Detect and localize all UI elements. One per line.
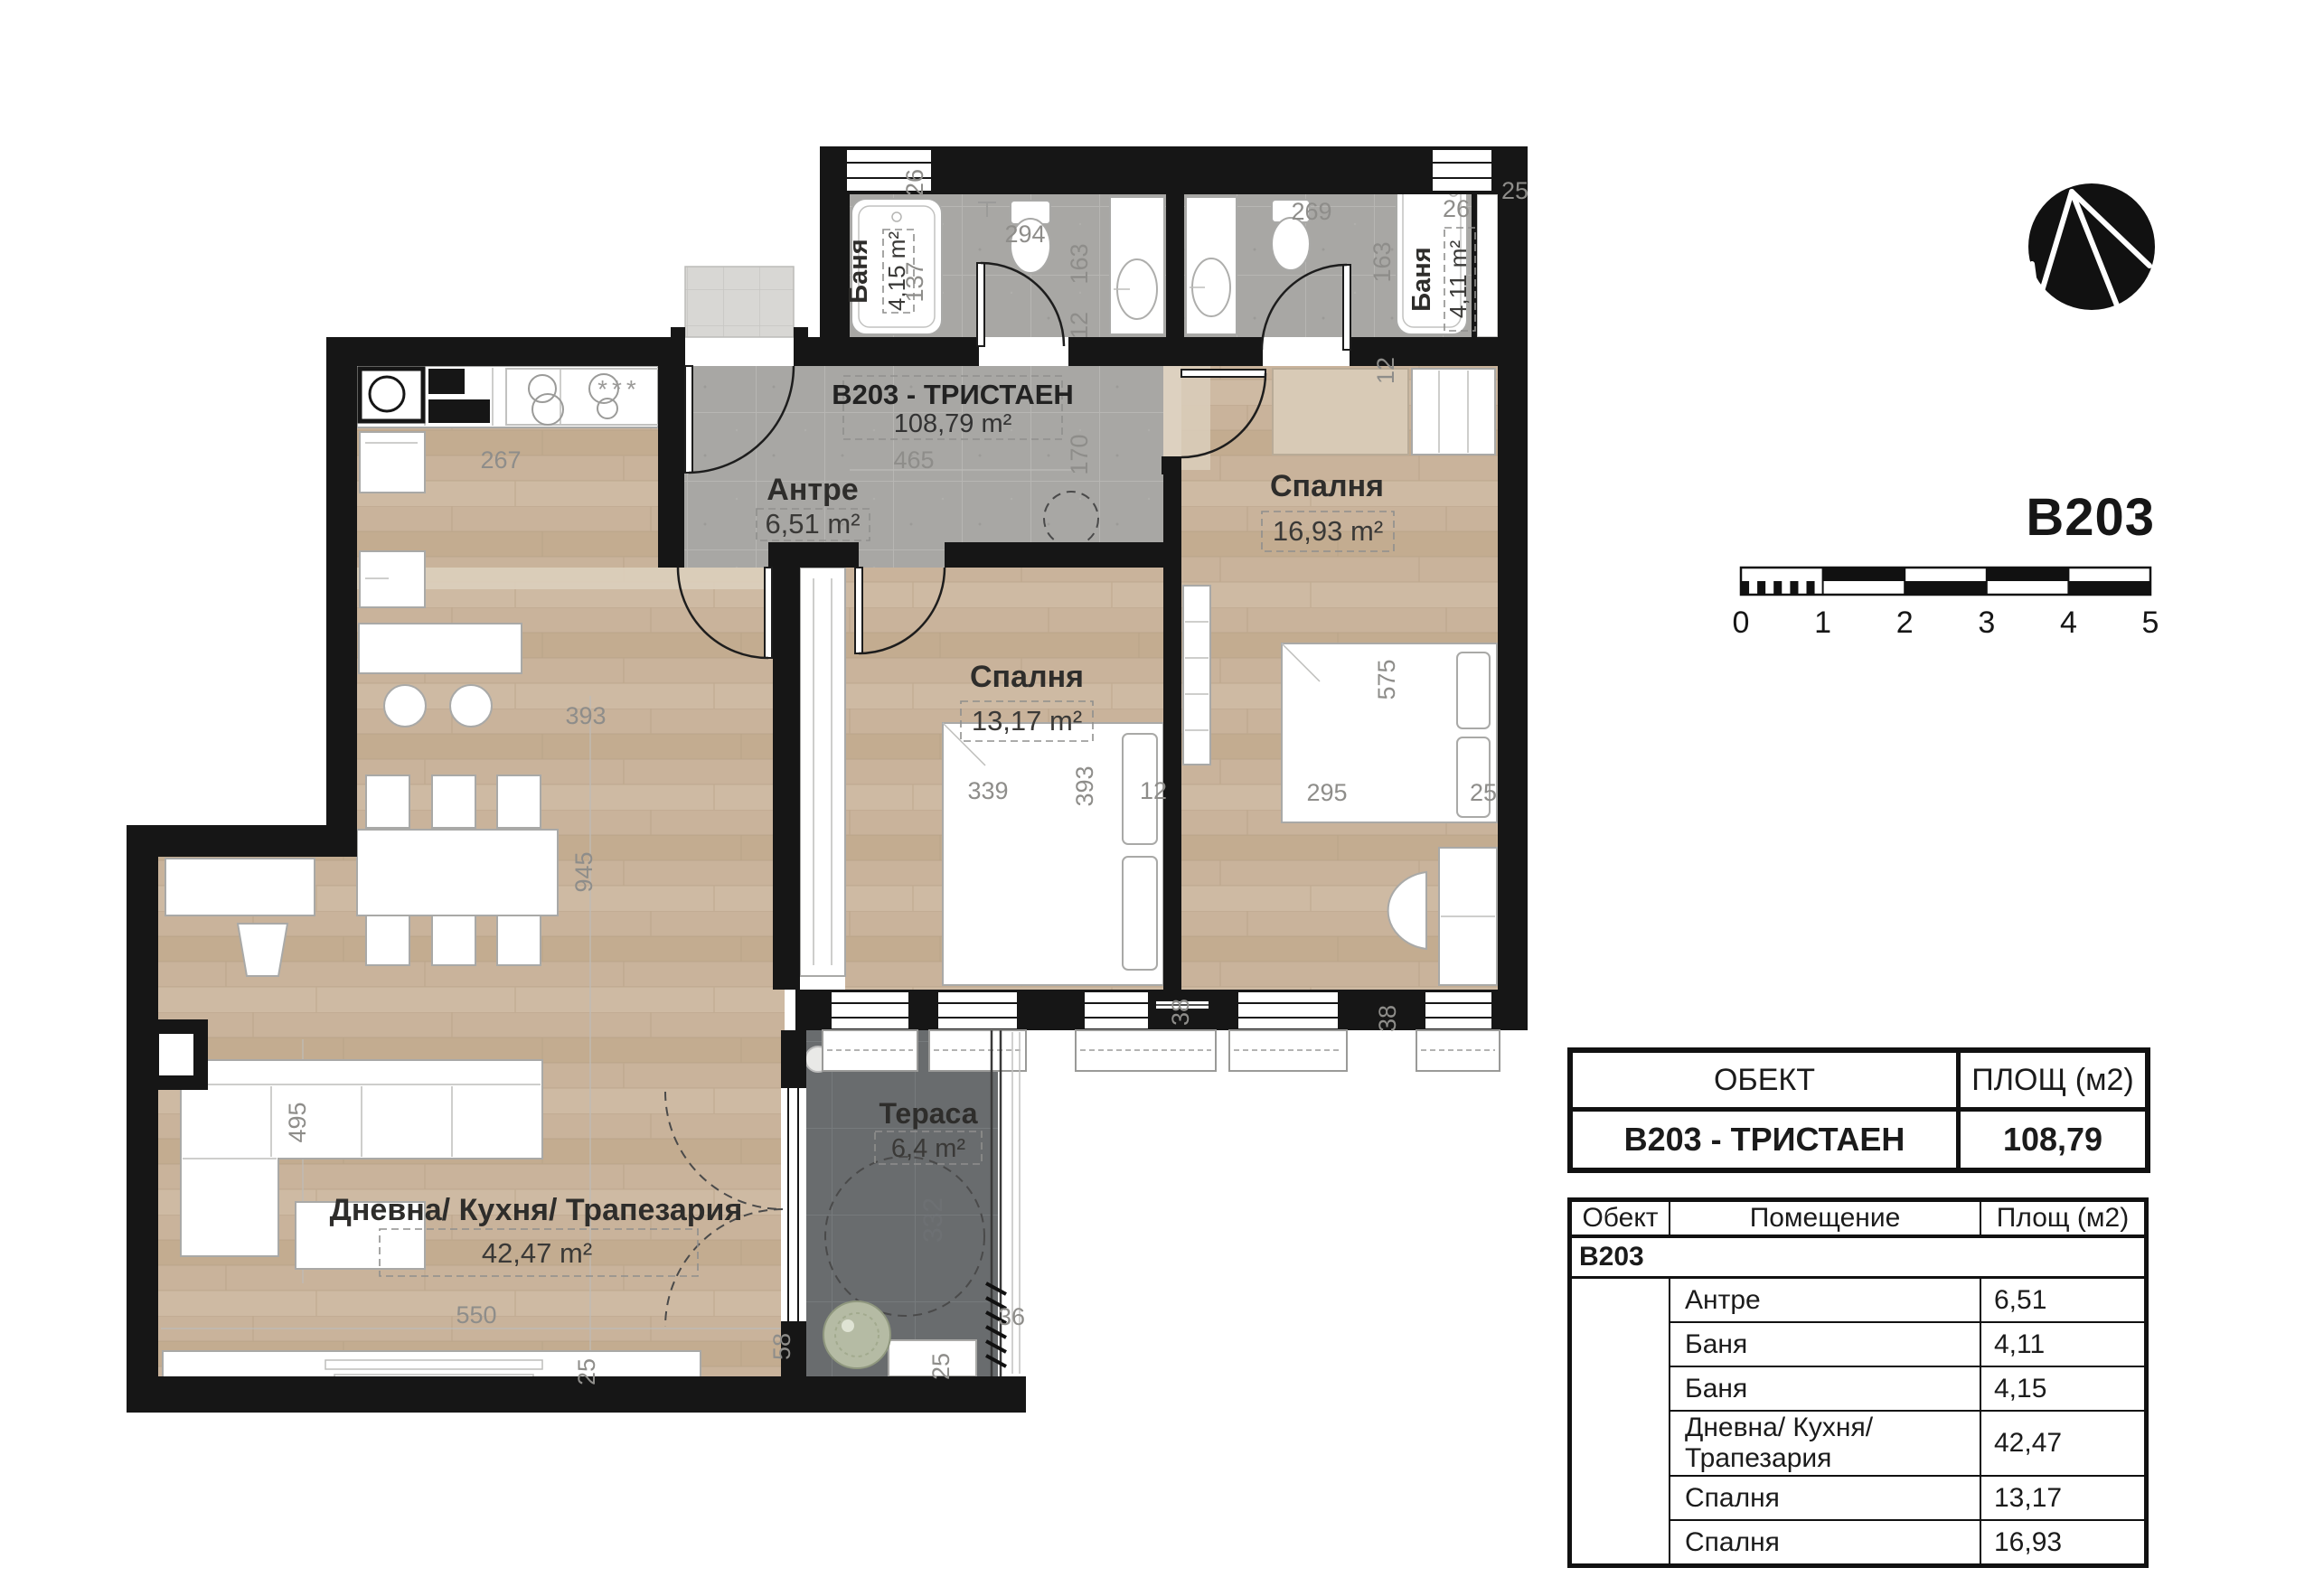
dim-38-b: 38 — [1374, 1005, 1401, 1032]
unit-area: 108,79 m² — [894, 409, 1012, 438]
scale-tick-3: 3 — [1978, 606, 1995, 640]
dim-294: 294 — [1004, 221, 1045, 248]
dim-163-left: 163 — [1066, 243, 1093, 284]
dim-295: 295 — [1306, 779, 1347, 806]
rooms-header-area: Площ (м2) — [1980, 1200, 2147, 1237]
scale-tick-1: 1 — [1814, 606, 1831, 640]
rooms-empty-cell — [1570, 1278, 1670, 1566]
svg-text:13,17 m²: 13,17 m² — [972, 705, 1082, 737]
scale-tick-2: 2 — [1896, 606, 1914, 640]
dim-170: 170 — [1066, 434, 1093, 474]
dim-25-living: 25 — [573, 1358, 600, 1385]
unit-code-title: B203 — [2026, 488, 2155, 547]
dim-38-a: 38 — [1167, 999, 1194, 1026]
rooms-group-label: B203 — [1570, 1236, 2147, 1278]
room-label-antre: Антре 6,51 m² — [757, 473, 870, 540]
window — [1076, 990, 1216, 1071]
dining-chair — [497, 915, 541, 965]
dim-393-living: 393 — [565, 702, 606, 729]
dim-26-left: 26 — [901, 169, 928, 196]
svg-text:6,4 m²: 6,4 m² — [891, 1134, 966, 1163]
summary-header-object: ОБЕКТ — [1570, 1050, 1959, 1110]
dim-267: 267 — [480, 446, 521, 474]
dim-550: 550 — [456, 1301, 496, 1328]
scale-tick-4: 4 — [2060, 606, 2077, 640]
dim-58: 58 — [768, 1333, 795, 1360]
dim-26-right: 26 — [1443, 195, 1470, 222]
summary-value-row: B203 - ТРИСТАЕН 108,79 — [1570, 1110, 2148, 1171]
bar-stool — [450, 685, 492, 727]
dim-339: 339 — [967, 777, 1008, 804]
window — [1229, 990, 1347, 1071]
wall-niche — [159, 1034, 193, 1075]
toilet-icon — [1272, 218, 1310, 270]
dim-12-bedroom: 12 — [1140, 777, 1167, 804]
dim-36: 36 — [998, 1303, 1025, 1330]
window — [823, 990, 917, 1071]
svg-text:Спалня: Спалня — [1270, 469, 1384, 503]
svg-text:Тераса: Тераса — [879, 1097, 977, 1130]
dim-269: 269 — [1291, 198, 1331, 225]
pillow — [1457, 652, 1490, 728]
kitchen-appliance — [360, 432, 425, 493]
dining-chair — [366, 775, 409, 828]
summary-unit-area: 108,79 — [1959, 1110, 2149, 1171]
rooms-header-object: Обект — [1570, 1200, 1670, 1237]
radiator — [1183, 586, 1210, 765]
sideboard — [165, 859, 315, 915]
armchair — [238, 924, 287, 976]
dim-25-terrace: 25 — [927, 1353, 955, 1380]
dining-chair — [432, 775, 475, 828]
floor-plan-page: *** — [0, 0, 2314, 1596]
table-row: Антре 6,51 — [1570, 1278, 2147, 1323]
dim-12-left: 12 — [1066, 312, 1093, 339]
kitchen-vent-marks: *** — [597, 375, 641, 403]
dim-465: 465 — [893, 446, 934, 474]
rooms-table-header: Обект Помещение Площ (м2) — [1570, 1200, 2147, 1237]
dining-chair — [432, 915, 475, 965]
svg-text:4,11 m²: 4,11 m² — [1444, 240, 1472, 319]
pillow — [1123, 857, 1157, 970]
svg-text:42,47 m²: 42,47 m² — [482, 1237, 592, 1269]
vanity — [1110, 197, 1164, 334]
svg-text:Антре: Антре — [767, 473, 858, 507]
dim-163-right: 163 — [1369, 241, 1396, 282]
dim-575: 575 — [1373, 659, 1400, 699]
dim-25-top: 25 — [1501, 177, 1529, 204]
svg-text:16,93 m²: 16,93 m² — [1273, 515, 1383, 547]
unit-title: B203 - ТРИСТАЕН — [832, 379, 1074, 410]
window — [1416, 990, 1500, 1071]
entry-vestibule-floor — [685, 267, 794, 337]
dim-495: 495 — [284, 1102, 311, 1142]
scale-tick-0: 0 — [1733, 606, 1750, 640]
dining-table — [357, 830, 558, 915]
bar-stool — [384, 685, 426, 727]
kitchen-cabinet — [428, 369, 465, 394]
svg-text:Баня: Баня — [844, 239, 873, 303]
summary-unit-name: B203 - ТРИСТАЕН — [1570, 1110, 1959, 1171]
dining-chair — [497, 775, 541, 828]
closet — [1412, 369, 1495, 455]
summary-header-area: ПЛОЩ (м2) — [1959, 1050, 2149, 1110]
rooms-table: Обект Помещение Площ (м2) B203 Антре 6,5… — [1567, 1197, 2149, 1568]
dim-945: 945 — [570, 851, 597, 892]
rooms-header-room: Помещение — [1670, 1200, 1980, 1237]
dim-393-bedroom: 393 — [1071, 765, 1098, 806]
svg-text:Дневна/ Кухня/ Трапезария: Дневна/ Кухня/ Трапезария — [330, 1193, 743, 1227]
dining-chair — [366, 915, 409, 965]
dim-332: 332 — [918, 1197, 948, 1243]
svg-text:Спалня: Спалня — [970, 660, 1084, 694]
rooms-group-row: B203 — [1570, 1236, 2147, 1278]
vanity — [1186, 197, 1237, 334]
shaft — [1477, 194, 1498, 337]
dim-25-bedroom: 25 — [1470, 779, 1497, 806]
summary-table: ОБЕКТ ПЛОЩ (м2) B203 - ТРИСТАЕН 108,79 — [1567, 1047, 2150, 1173]
brand-logo-icon — [2028, 183, 2155, 310]
svg-text:6,51 m²: 6,51 m² — [765, 508, 860, 540]
scale-tick-5: 5 — [2142, 606, 2159, 640]
scale-bar: 0 1 2 3 4 5 — [1733, 568, 2159, 640]
kitchen-appliance — [360, 551, 425, 607]
svg-text:Баня: Баня — [1407, 247, 1436, 311]
window — [1425, 148, 1500, 192]
kitchen-island — [359, 624, 522, 673]
kitchen-cabinet — [428, 399, 490, 423]
plant-icon — [823, 1301, 890, 1368]
summary-header-row: ОБЕКТ ПЛОЩ (м2) — [1570, 1050, 2148, 1110]
wardrobe — [800, 568, 845, 976]
dim-12-right: 12 — [1372, 357, 1399, 384]
dim-137: 137 — [901, 261, 928, 302]
window — [929, 990, 1026, 1071]
